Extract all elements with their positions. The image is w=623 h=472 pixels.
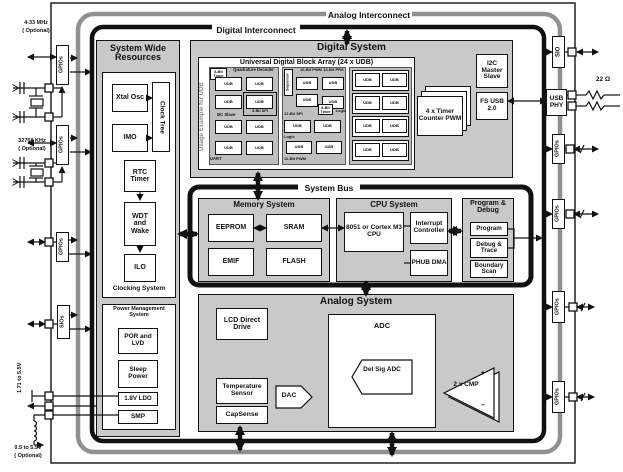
ldo-block: 1.8V LDO [118,392,158,406]
udb-cell: UDB [355,119,380,133]
dac-label: DAC [276,392,302,402]
udb-cell: UDB [215,77,242,91]
udb-cell: UDB [382,96,407,110]
program-block: Program [470,222,508,236]
udb-cell: UDB [355,143,380,157]
udb-label-logic-b: Logic [284,135,300,140]
udb-cell: UDB [316,141,342,154]
udb-cell: UDB [322,77,344,90]
xtal-osc-block: Xtal Osc [112,84,148,112]
udb-label-12bit-pwm: 12-Bit PWM [284,157,316,164]
sleep-power-block: Sleep Power [118,360,158,388]
temperature-sensor-block: Temperature Sensor [216,378,268,404]
flash-block: FLASH [266,248,322,276]
cpu-system-title: CPU System [336,201,452,211]
i2c-master-slave-block: I2C Master Slave [476,54,508,88]
gpio-box-left-2: GPIOs [56,125,69,165]
udb-label-12bit-spi: 12-Bit SPI [284,112,314,118]
gpio-box-right-1: GPIOs [552,134,565,164]
udb-cell: UDB [246,77,273,91]
xtal-khz-optional-label: ( Optional) [8,147,56,155]
eeprom-block: EEPROM [208,214,254,242]
udb-cell: UDB [284,120,311,133]
block-diagram: System Wide Resources Xtal Osc Clock Tre… [0,0,623,472]
cmp-plus-label: + [478,370,488,379]
clock-tree-block: Clock Tree [152,82,170,152]
udb-cell: UDB [382,119,407,133]
udb-cell: UDB [215,120,242,134]
sio-box-right: SIO [552,36,565,68]
sram-block: SRAM [266,214,322,242]
digital-interconnect-label: Digital Interconnect [212,23,300,36]
gpio-box-left-1: GPIOs [56,45,69,85]
delsig-adc-label: Del Sig ADC [360,367,404,387]
udb-label-16bit-prs: 16-Bit PRS [321,68,346,75]
udb-cell: UDB [215,141,242,155]
interrupt-controller-block: Interrupt Controller [410,212,448,244]
udb-cell: UDB [246,120,273,134]
udb-cell: UDB [215,95,242,109]
udb-cell: UDB [382,143,407,157]
memory-system-title: Memory System [198,201,330,211]
vbat-optional-label: ( Optional) [6,454,50,462]
sio-box-left: SIOs [57,305,70,339]
udb-label-8bit-spi: 8-Bit SPI [244,109,276,115]
gpio-box-left-3: GPIOs [56,232,69,262]
udb-cell: UDB [286,141,312,154]
boundary-scan-block: Boundary Scan [470,260,508,278]
udb-cell: UDB [314,120,341,133]
udb-cell: UDB [246,141,273,155]
udb-label-8bit-timer-right: 8-Bit Timer [318,104,333,115]
gpio-box-right-3: GPIOs [552,291,565,323]
cpu-core-block: 8051 or Cortex M3 CPU [344,212,404,252]
udb-label-logic-a: Logic [335,109,347,114]
cmp-label: 2 x CMP [450,382,482,402]
udb-cell: UDB [355,96,380,110]
digital-system-title: Digital System [190,43,513,55]
gpio-box-right-4: GPIOs [552,381,565,413]
capsense-block: CapSense [216,406,268,424]
rtc-timer-block: RTC Timer [124,160,156,192]
usb-phy-block: USB PHY [546,89,567,116]
ilo-block: ILO [124,254,156,282]
wdt-wake-block: WDT and Wake [124,202,156,246]
udb-cell: UDB [382,73,407,87]
xtal-mhz-optional-label: ( Optional) [14,29,58,37]
phub-dma-block: PHUB DMA [410,250,448,276]
udb-label-uart: UART [210,157,232,163]
udb-label-sequencer: Sequencer [284,69,293,96]
fs-usb-block: FS USB 2.0 [476,92,508,120]
crystal-circuits [13,82,62,188]
left-io-wires [28,57,91,329]
por-lvd-block: POR and LVD [118,328,158,354]
program-debug-title: Program & Debug [463,200,513,218]
debug-trace-block: Debug & Trace [470,238,508,258]
timer-counter-pwm-block: 4 x Timer Counter PWM [417,96,463,136]
system-wide-resources-title: System Wide Resources [98,44,178,68]
vdd-range-label: 1.71 to 5.5V [18,352,38,404]
smp-block: SMP [118,410,158,424]
imo-block: IMO [112,124,148,152]
power-management-title: Power Management System [104,307,174,321]
gpio-box-right-2: GPIOs [552,199,565,229]
udb-cell: UDB [355,73,380,87]
lcd-direct-drive-block: LCD Direct Drive [216,308,268,340]
clocking-system-label: Clocking System [102,286,176,296]
udb-label-i2c-slave: I2C Slave [210,113,242,119]
usb-resistor-label: 22 Ω [590,77,616,86]
adc-label: ADC [328,322,436,332]
udb-usage-side-label: Usage Example for UDB [199,66,208,168]
emif-block: EMIF [208,248,254,276]
udb-cell: UDB [296,77,318,90]
analog-interconnect-label: Analog Interconnect [326,8,412,21]
udb-cell: UDB [296,94,318,107]
udb-label-quadrature-decoder: Quadrature Decoder [229,68,278,75]
cmp-minus-label: – [478,402,488,411]
system-bus-label: System Bus [298,181,360,194]
udb-cell: UDB [246,95,273,109]
